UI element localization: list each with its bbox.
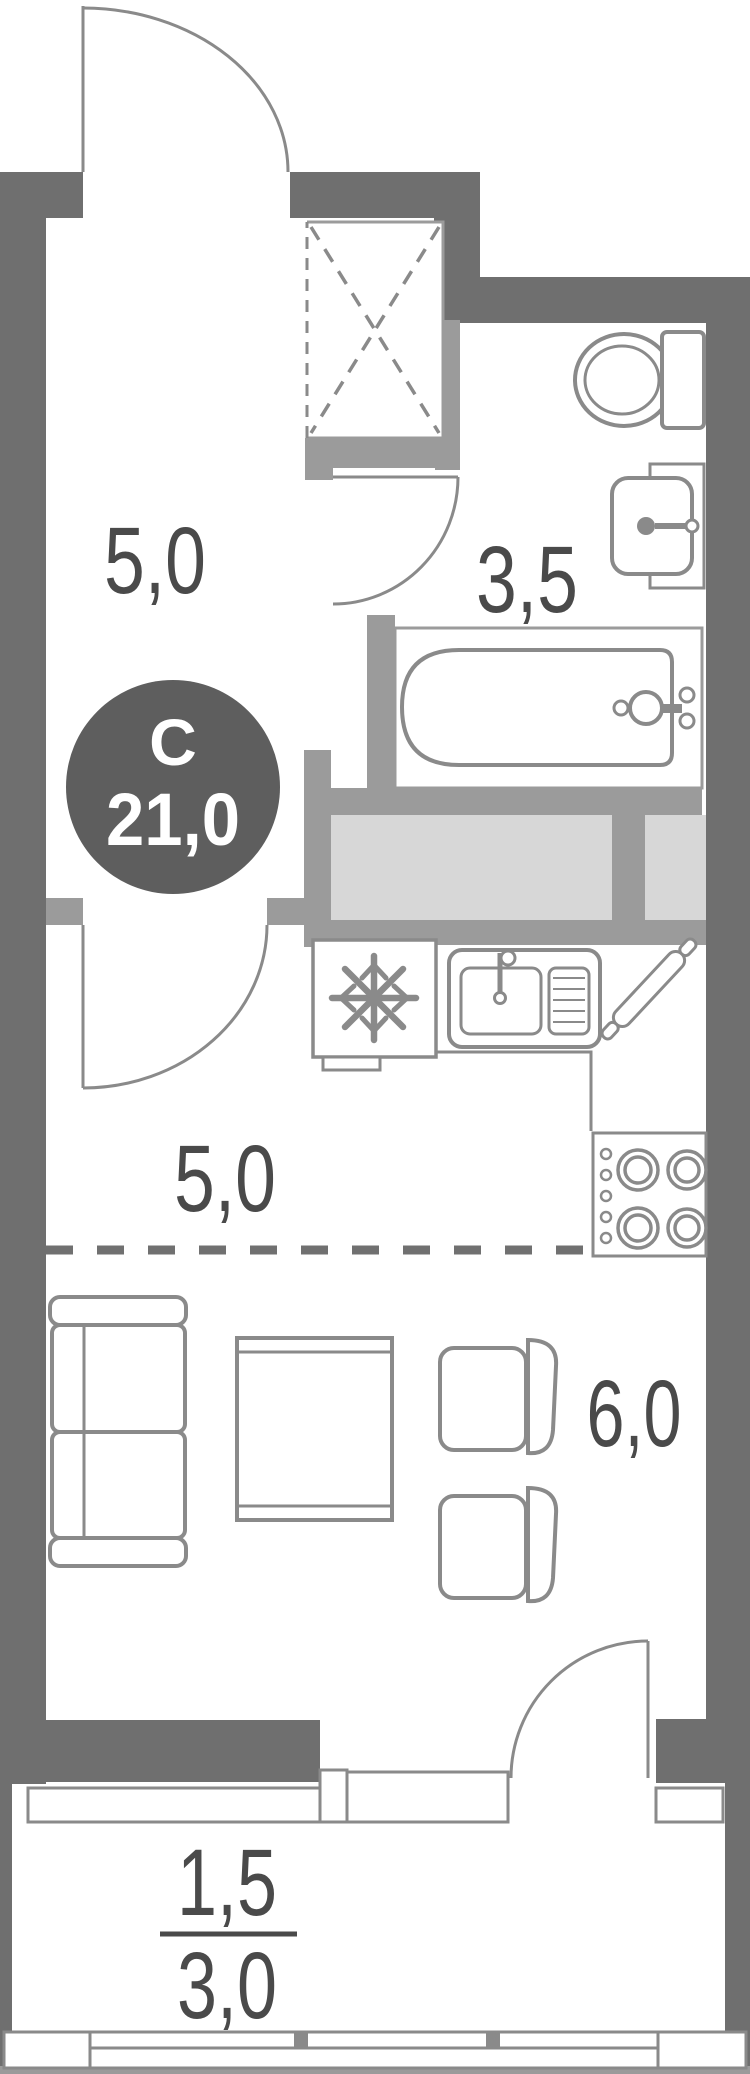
table-top bbox=[237, 1338, 392, 1520]
window-section bbox=[347, 1772, 508, 1822]
sofa-armrest-bottom bbox=[50, 1538, 186, 1566]
hall-door bbox=[83, 925, 267, 1088]
coffee-table bbox=[237, 1338, 392, 1520]
stove bbox=[593, 1133, 706, 1256]
toilet bbox=[575, 332, 704, 428]
kitchen-fixtures bbox=[313, 935, 706, 1256]
living-bottom-wall bbox=[46, 1720, 320, 1782]
living-furniture bbox=[50, 1297, 556, 1601]
chair-1 bbox=[440, 1340, 556, 1453]
wardrobe-bottom-wall bbox=[305, 438, 460, 468]
wardrobe bbox=[307, 222, 443, 438]
glazing-mullion bbox=[294, 2032, 308, 2048]
bathroom-area-label: 3,5 bbox=[476, 527, 578, 633]
rolling-pin-icon bbox=[597, 935, 700, 1044]
vent-shaft-1 bbox=[331, 815, 612, 920]
balcony-area-fraction: 1,5 3,0 bbox=[160, 1830, 297, 2039]
duct-separator bbox=[612, 815, 645, 920]
balcony-door-stub bbox=[656, 1719, 706, 1783]
balcony-right-wall bbox=[725, 1783, 750, 2074]
balcony-area-full-label: 3,0 bbox=[177, 1933, 277, 2039]
ventilation-shafts bbox=[331, 815, 706, 920]
bathtub-drain bbox=[614, 701, 628, 715]
kitchen-sink bbox=[449, 950, 600, 1047]
entrance-door bbox=[83, 6, 288, 172]
window-mullion bbox=[320, 1770, 347, 1822]
chair-backrest bbox=[528, 1340, 556, 1453]
bathtub bbox=[402, 650, 694, 765]
bathtub-tap-cold bbox=[680, 714, 694, 728]
bathtub-spout bbox=[660, 704, 682, 713]
chair-2 bbox=[440, 1488, 556, 1601]
vent-shaft-2 bbox=[645, 815, 706, 920]
bathtub-tap-hot bbox=[680, 688, 694, 702]
glazing-right-box bbox=[658, 2032, 746, 2068]
kitchen-area-label: 5,0 bbox=[174, 1126, 276, 1232]
tub-pilaster bbox=[367, 615, 395, 790]
chair-backrest bbox=[528, 1488, 556, 1601]
hall-wall-right-stub bbox=[267, 898, 304, 925]
kitchen-faucet-base bbox=[495, 993, 506, 1004]
floor-plan-svg: С 21,0 5,0 3,5 5,0 6,0 1,5 3,0 bbox=[0, 0, 750, 2074]
bathroom-bottom-wall bbox=[304, 788, 702, 815]
fridge-handle bbox=[323, 1057, 380, 1070]
bathroom-door-swing-arc bbox=[333, 477, 458, 604]
bathroom-sink bbox=[612, 464, 704, 588]
sofa-seat-2 bbox=[52, 1432, 185, 1538]
sofa bbox=[50, 1297, 186, 1566]
balcony-area-reduced-label: 1,5 bbox=[177, 1830, 277, 1936]
hall-door-swing-arc bbox=[83, 925, 267, 1088]
fridge bbox=[313, 940, 436, 1070]
kitchen-faucet-head bbox=[501, 951, 515, 965]
chair-seat bbox=[440, 1496, 526, 1598]
balcony-door-swing-arc bbox=[511, 1641, 648, 1778]
bathroom-door bbox=[333, 477, 458, 604]
area-badge: С 21,0 bbox=[66, 680, 280, 894]
balcony-door bbox=[511, 1641, 648, 1778]
bath-door-jamb bbox=[305, 468, 333, 480]
sink-faucet-icon bbox=[637, 517, 655, 535]
bathtub-faucet bbox=[630, 692, 662, 724]
balcony-glazing bbox=[4, 2032, 746, 2068]
floor-plan: С 21,0 5,0 3,5 5,0 6,0 1,5 3,0 bbox=[0, 0, 750, 2074]
snowflake-icon bbox=[332, 956, 416, 1040]
left-wall bbox=[0, 172, 46, 1784]
right-wall bbox=[706, 277, 750, 1783]
toilet-bowl-inner bbox=[585, 346, 659, 414]
glazing-mullion bbox=[486, 2032, 500, 2048]
glazing-frame bbox=[90, 2032, 658, 2068]
chair-seat bbox=[440, 1348, 526, 1450]
hall-wall-left-stub bbox=[46, 898, 83, 925]
duct-left-wall bbox=[304, 750, 331, 947]
glazing-left-box bbox=[4, 2032, 90, 2068]
window-sill bbox=[28, 1788, 320, 1822]
door-threshold-box bbox=[656, 1788, 723, 1822]
toilet-tank bbox=[662, 332, 704, 428]
bathroom-top-wall bbox=[480, 277, 706, 323]
sofa-armrest-top bbox=[50, 1297, 186, 1325]
badge-area-label: 21,0 bbox=[106, 778, 240, 861]
top-wall-left-stub bbox=[0, 172, 83, 218]
entrance-door-swing-arc bbox=[83, 8, 288, 172]
sofa-seat-1 bbox=[52, 1325, 185, 1432]
hallway-area-label: 5,0 bbox=[104, 508, 206, 614]
badge-type-label: С bbox=[149, 705, 197, 779]
living-area-label: 6,0 bbox=[587, 1361, 682, 1467]
top-wall-right bbox=[290, 172, 480, 218]
sink-faucet-knob bbox=[686, 520, 698, 532]
